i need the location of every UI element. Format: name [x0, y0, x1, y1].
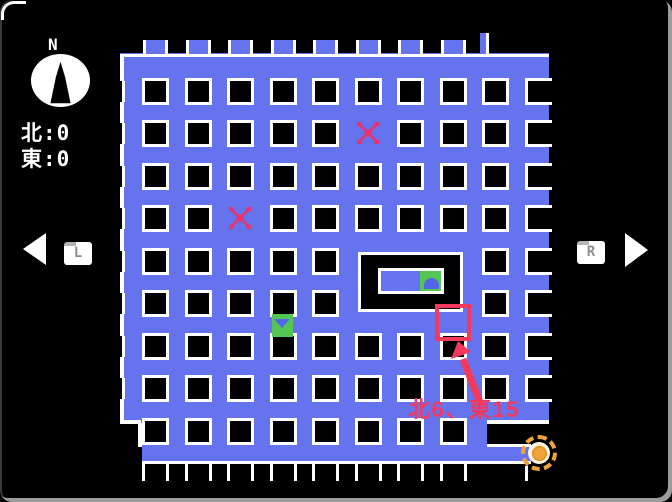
maze-outline	[122, 81, 125, 102]
maze-pillar	[355, 375, 382, 402]
maze-pillar	[312, 290, 339, 317]
maze-pillar	[185, 248, 212, 275]
maze-pillar	[312, 120, 339, 147]
maze-pillar	[440, 120, 467, 147]
x-mark-icon	[357, 122, 379, 144]
maze-pillar	[397, 78, 424, 105]
maze-edge-tick	[464, 464, 467, 481]
maze-pillar	[227, 290, 254, 317]
maze-pillar	[312, 418, 339, 445]
maze-pillar	[397, 120, 424, 147]
maze-pillar	[142, 290, 169, 317]
maze-pillar	[397, 205, 424, 232]
maze-floor-tooth	[146, 40, 165, 54]
maze-edge-tick	[421, 464, 424, 481]
maze-pillar	[142, 120, 169, 147]
maze-pillar	[312, 163, 339, 190]
maze-floor-tooth	[231, 40, 250, 54]
maze-pillar	[185, 290, 212, 317]
maze-pillar	[440, 78, 467, 105]
maze-floor-tooth	[274, 40, 293, 54]
maze-pillar	[227, 163, 254, 190]
maze-pillar	[270, 375, 297, 402]
maze-pillar	[270, 120, 297, 147]
maze-pillar	[185, 163, 212, 190]
maze-pillar	[227, 333, 254, 360]
maze-pillar	[525, 205, 552, 232]
treasure-icon	[424, 278, 439, 289]
maze-pillar	[270, 205, 297, 232]
maze-outline	[420, 40, 423, 54]
maze-pillar	[312, 333, 339, 360]
maze-pillar	[440, 163, 467, 190]
maze-outline	[122, 378, 125, 399]
maze-edge-tick	[142, 464, 145, 481]
maze-pillar	[312, 78, 339, 105]
maze-edge-tick	[251, 464, 254, 481]
maze-pillar	[355, 333, 382, 360]
maze-edge-tick	[397, 464, 400, 481]
maze-edge-tick	[209, 464, 212, 481]
maze-outline	[398, 40, 401, 54]
maze-outline	[313, 40, 316, 54]
maze-edge-tick	[379, 464, 382, 481]
maze-pillar	[185, 375, 212, 402]
maze-pillar	[525, 163, 552, 190]
maze-outline	[208, 40, 211, 54]
maze-pillar	[270, 418, 297, 445]
maze-edge-tick	[355, 464, 358, 481]
maze-floor-tooth	[316, 40, 335, 54]
maze-edge-tick	[525, 466, 528, 481]
highlight-cell	[435, 304, 471, 341]
maze-outline	[293, 40, 296, 54]
game-screen: N 北:0 東:0 L R 北6、東15	[0, 0, 672, 502]
maze-pillar	[185, 78, 212, 105]
maze-outline	[486, 33, 489, 54]
maze-outline	[138, 423, 142, 447]
maze-pillar	[142, 205, 169, 232]
maze-outline	[122, 293, 125, 314]
maze-pillar	[525, 333, 552, 360]
maze-pillar	[227, 78, 254, 105]
maze-outline	[122, 336, 125, 357]
maze-pillar	[312, 375, 339, 402]
maze-outline	[271, 40, 274, 54]
annotation-text: 北6、東15	[408, 392, 520, 424]
maze-outline	[335, 40, 338, 54]
maze-floor-tooth	[359, 40, 378, 54]
maze-outline	[165, 40, 168, 54]
maze-edge-tick	[227, 464, 230, 481]
maze-edge-tick	[166, 464, 169, 481]
maze-outline	[463, 40, 466, 54]
maze-outline	[122, 123, 125, 144]
maze-pillar	[482, 163, 509, 190]
maze-pillar	[482, 248, 509, 275]
maze-pillar	[142, 248, 169, 275]
maze-outline	[356, 40, 359, 54]
maze-edge-tick	[270, 464, 273, 481]
maze-outline	[378, 40, 381, 54]
maze-pillar	[312, 205, 339, 232]
maze-pillar	[397, 333, 424, 360]
down-arrow-icon	[274, 319, 290, 328]
dungeon-map	[0, 0, 672, 502]
maze-pillar	[525, 78, 552, 105]
maze-outline	[143, 40, 146, 54]
maze-edge-tick	[336, 464, 339, 481]
maze-pillar	[227, 120, 254, 147]
maze-pillar	[270, 248, 297, 275]
maze-floor-tooth	[189, 40, 208, 54]
maze-edge-tick	[312, 464, 315, 481]
maze-pillar	[525, 290, 552, 317]
maze-pillar	[185, 333, 212, 360]
maze-outline	[122, 166, 125, 187]
maze-floor-tooth	[444, 40, 463, 54]
maze-pillar	[185, 205, 212, 232]
maze-outline-left	[120, 54, 124, 423]
maze-pillar	[397, 163, 424, 190]
maze-pillar	[142, 163, 169, 190]
maze-pillar	[525, 375, 552, 402]
maze-pillar	[142, 418, 169, 445]
maze-pillar	[482, 120, 509, 147]
maze-pillar	[227, 418, 254, 445]
maze-pillar	[227, 248, 254, 275]
maze-pillar	[270, 163, 297, 190]
maze-edge-tick	[185, 464, 188, 481]
maze-pillar	[525, 248, 552, 275]
maze-outline-top	[120, 54, 549, 57]
maze-outline	[122, 208, 125, 229]
maze-floor-tooth	[401, 40, 420, 54]
maze-pillar	[525, 120, 552, 147]
maze-pillar	[312, 248, 339, 275]
maze-pillar	[142, 78, 169, 105]
maze-outline	[441, 40, 444, 54]
maze-outline	[186, 40, 189, 54]
maze-pillar	[355, 418, 382, 445]
maze-pillar	[142, 333, 169, 360]
maze-pillar	[270, 290, 297, 317]
x-mark-icon	[229, 207, 251, 229]
maze-pillar	[355, 163, 382, 190]
maze-edge-tick	[440, 464, 443, 481]
maze-pillar	[482, 205, 509, 232]
player-target-core	[532, 446, 547, 461]
maze-pillar	[355, 78, 382, 105]
maze-pillar	[142, 375, 169, 402]
maze-pillar	[227, 375, 254, 402]
maze-edge-tick	[294, 464, 297, 481]
maze-pillar	[185, 120, 212, 147]
maze-outline	[122, 251, 125, 272]
maze-pillar	[355, 205, 382, 232]
maze-pillar	[185, 418, 212, 445]
maze-pillar	[482, 78, 509, 105]
maze-pillar	[440, 205, 467, 232]
maze-pillar	[270, 78, 297, 105]
maze-outline	[250, 40, 253, 54]
maze-outline	[228, 40, 231, 54]
maze-pillar	[482, 290, 509, 317]
